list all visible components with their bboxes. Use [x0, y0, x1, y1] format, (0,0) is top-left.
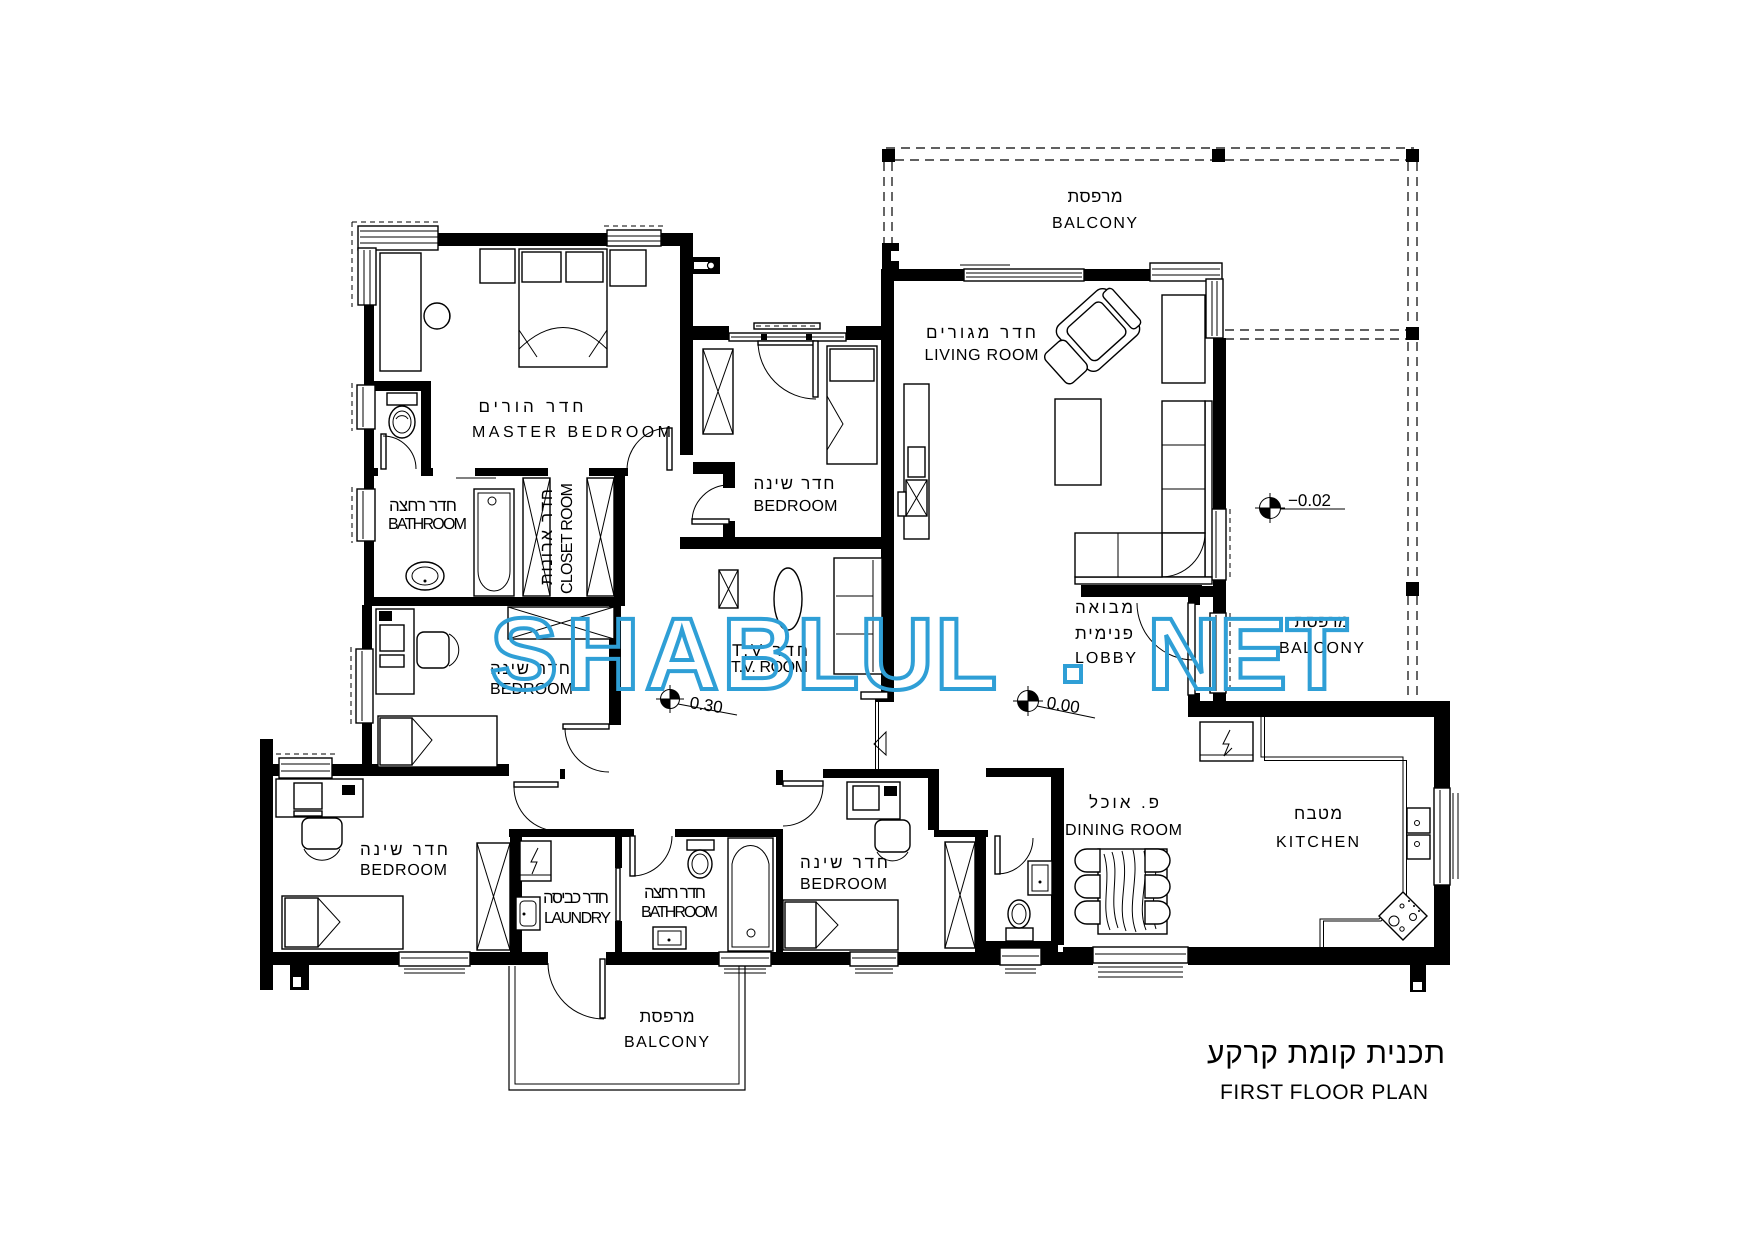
- svg-text:תכנית קומת קרקע: תכנית קומת קרקע: [1207, 1037, 1445, 1070]
- svg-text:חדר הורים: חדר הורים: [479, 397, 584, 416]
- svg-text:BATHROOM: BATHROOM: [388, 516, 468, 533]
- svg-text:BEDROOM: BEDROOM: [360, 862, 448, 879]
- svg-text:DINING ROOM: DINING ROOM: [1065, 822, 1183, 839]
- svg-text:BEDROOM: BEDROOM: [800, 876, 888, 893]
- svg-text:פנימית: פנימית: [1075, 624, 1133, 643]
- svg-text:BEDROOM: BEDROOM: [754, 498, 839, 515]
- svg-text:BALCONY: BALCONY: [1052, 215, 1138, 232]
- svg-text:MASTER BEDROOM: MASTER BEDROOM: [472, 424, 672, 441]
- svg-text:חדר שינה: חדר שינה: [754, 474, 835, 493]
- svg-text:מרפסת: מרפסת: [1068, 187, 1123, 206]
- svg-text:BATHROOM: BATHROOM: [641, 904, 719, 921]
- svg-text:FIRST FLOOR PLAN: FIRST FLOOR PLAN: [1220, 1081, 1430, 1104]
- svg-text:LIVING ROOM: LIVING ROOM: [925, 347, 1040, 364]
- svg-text:מבואה: מבואה: [1075, 598, 1133, 617]
- svg-text:מרפסת: מרפסת: [640, 1007, 695, 1026]
- svg-text:מטבח: מטבח: [1294, 804, 1342, 823]
- svg-text:חדר כביסה: חדר כביסה: [543, 888, 609, 907]
- svg-text:LAUNDRY: LAUNDRY: [544, 910, 612, 927]
- svg-text:חדר רחצה: חדר רחצה: [644, 883, 706, 902]
- svg-text:BALCONY: BALCONY: [624, 1034, 710, 1051]
- svg-text:KITCHEN: KITCHEN: [1276, 834, 1360, 851]
- svg-text:CLOSET ROOM: CLOSET ROOM: [559, 482, 576, 594]
- svg-text:LOBBY: LOBBY: [1075, 650, 1137, 667]
- svg-text:−0.02: −0.02: [1288, 491, 1331, 510]
- svg-text:חדר מגורים: חדר מגורים: [926, 323, 1036, 342]
- svg-text:SHABLULNET: SHABLULNET: [490, 597, 1348, 711]
- svg-text:חדר רחצה: חדר רחצה: [389, 496, 457, 515]
- svg-text:חדר ארונות: חדר ארונות: [537, 489, 556, 585]
